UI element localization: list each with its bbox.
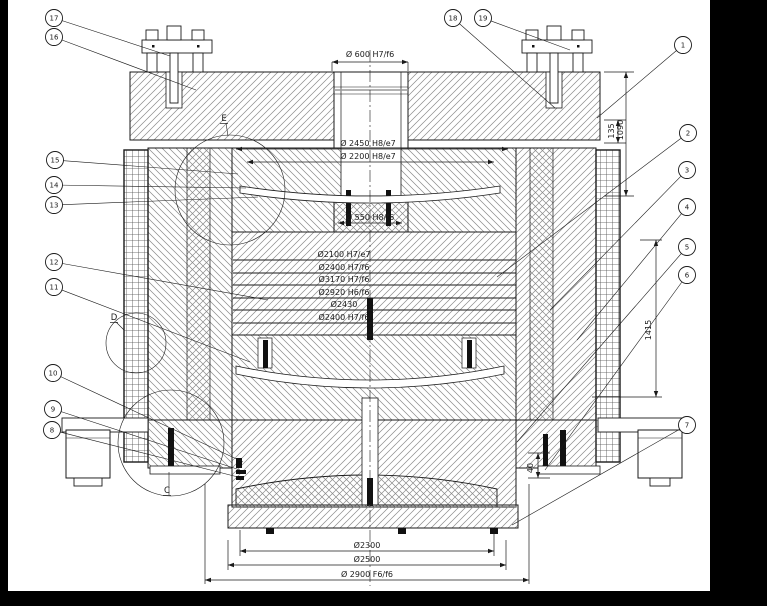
dim-label: Ø 2450 H8/e7 <box>340 138 396 148</box>
foot-pad <box>266 528 274 534</box>
dim-label: Ø 2200 H8/e7 <box>340 151 396 161</box>
dim-label: 135 <box>607 123 616 138</box>
balloon-number: 16 <box>50 34 59 42</box>
balloon-number: 8 <box>50 427 54 435</box>
right-wall <box>516 148 596 420</box>
balloon-number: 6 <box>685 272 690 280</box>
balloon-number: 10 <box>49 370 58 378</box>
balloon-number: 2 <box>686 130 690 138</box>
balloon-number: 7 <box>685 422 689 430</box>
balloon-number: 9 <box>51 406 55 414</box>
dim-label: Ø 2900 F6/f6 <box>341 569 393 579</box>
dim-label: 1415 <box>644 320 653 340</box>
dim-label: Ø 600 H7/f6 <box>346 49 394 59</box>
balloon-number: 12 <box>50 259 59 267</box>
balloon-number: 13 <box>50 202 59 210</box>
ring-stack <box>232 232 516 335</box>
balloon-number: 18 <box>449 15 458 23</box>
balloon-number: 14 <box>50 182 59 190</box>
dim-label: 40 <box>526 463 535 473</box>
balloon-number: 5 <box>685 244 689 252</box>
frame-left <box>0 0 8 606</box>
dim-label: Ø2400 H7/f6 <box>319 262 370 272</box>
center-bore <box>334 72 408 148</box>
dim-label: Ø2400 H7/f6 <box>319 312 370 322</box>
dim-label: Ø3170 H7/f6 <box>319 274 370 284</box>
piston-stud <box>467 340 472 368</box>
detail-letter-C: C <box>164 486 170 496</box>
dim-label: Ø2500 <box>354 554 381 564</box>
balloon-number: 4 <box>685 204 690 212</box>
balloon-number: 3 <box>685 167 689 175</box>
left-heater-band <box>124 150 148 462</box>
right-clamp-zone <box>516 420 596 468</box>
balloon-number: 11 <box>50 284 59 292</box>
dim-label: Ø2430 <box>331 299 358 309</box>
dim-label: Ø2920 H6/f6 <box>319 287 370 297</box>
balloon-number: 19 <box>479 15 488 23</box>
piston-stud <box>263 340 268 368</box>
balloon-number: 1 <box>681 42 685 50</box>
balloon-number: 15 <box>51 157 60 165</box>
frame-bottom <box>0 591 767 606</box>
dim-label: Ø2300 <box>354 540 381 550</box>
foot-pad <box>398 528 406 534</box>
balloon-number: 17 <box>50 15 59 23</box>
right-liner <box>530 148 553 420</box>
dim-label: Ø 550 H8/f6 <box>346 212 394 222</box>
technical-drawing: Ø 600 H7/f6Ø 2450 H8/e7Ø 2200 H8/e7Ø 550… <box>0 0 767 606</box>
drawing-canvas: Ø 600 H7/f6Ø 2450 H8/e7Ø 2200 H8/e7Ø 550… <box>0 0 767 606</box>
detail-letter-E: E <box>221 114 226 124</box>
dim-label: 1090 <box>616 120 625 140</box>
frame-right <box>710 0 767 606</box>
bottom-slab <box>228 505 518 528</box>
detail-letter-D: D <box>111 313 118 323</box>
left-liner <box>187 148 210 420</box>
dim-label: Ø2100 H7/e7 <box>317 249 370 259</box>
right-heater-band <box>596 150 620 462</box>
